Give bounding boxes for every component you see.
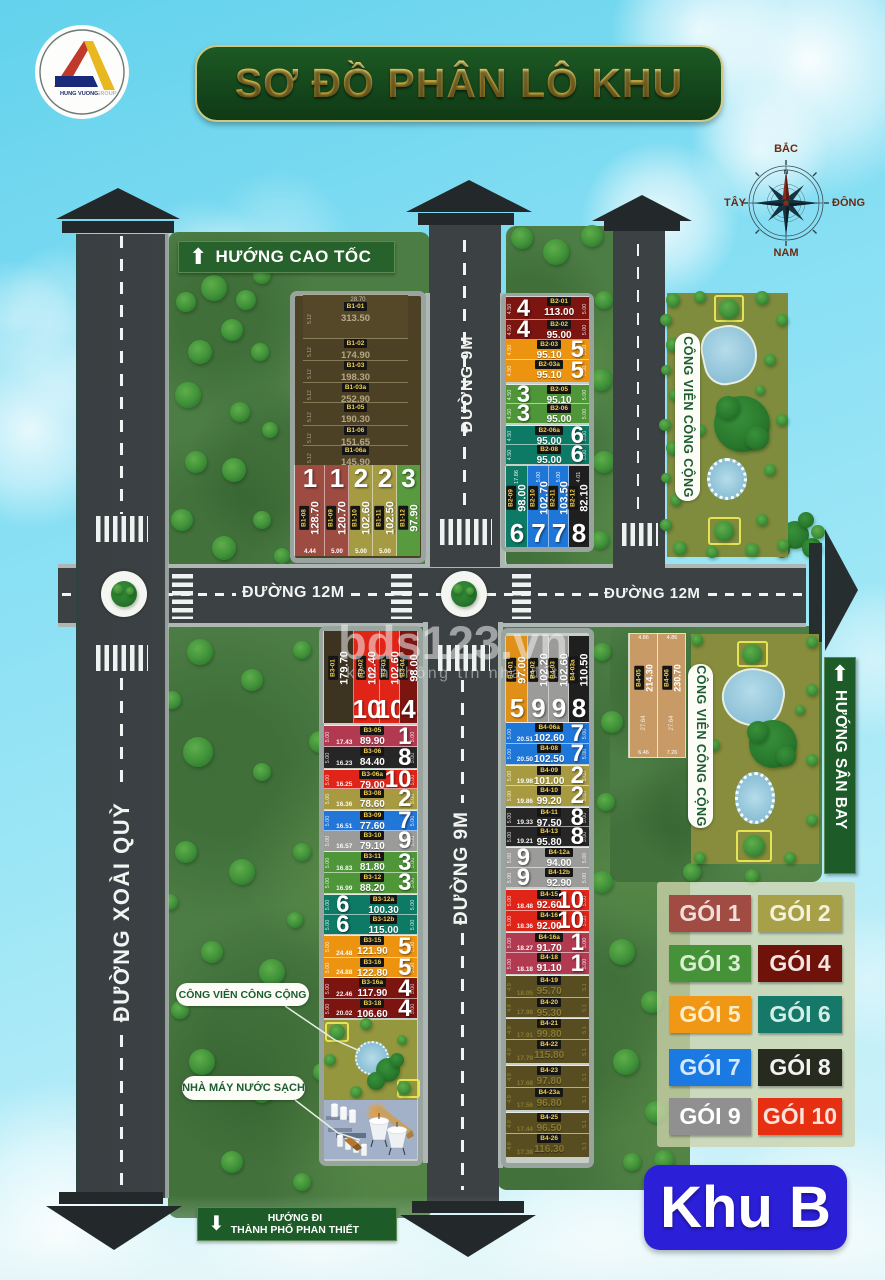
svg-text:N: N <box>784 170 788 176</box>
svg-text:HUNG VUONG: HUNG VUONG <box>60 91 99 97</box>
svg-text:GROUP: GROUP <box>96 91 117 97</box>
